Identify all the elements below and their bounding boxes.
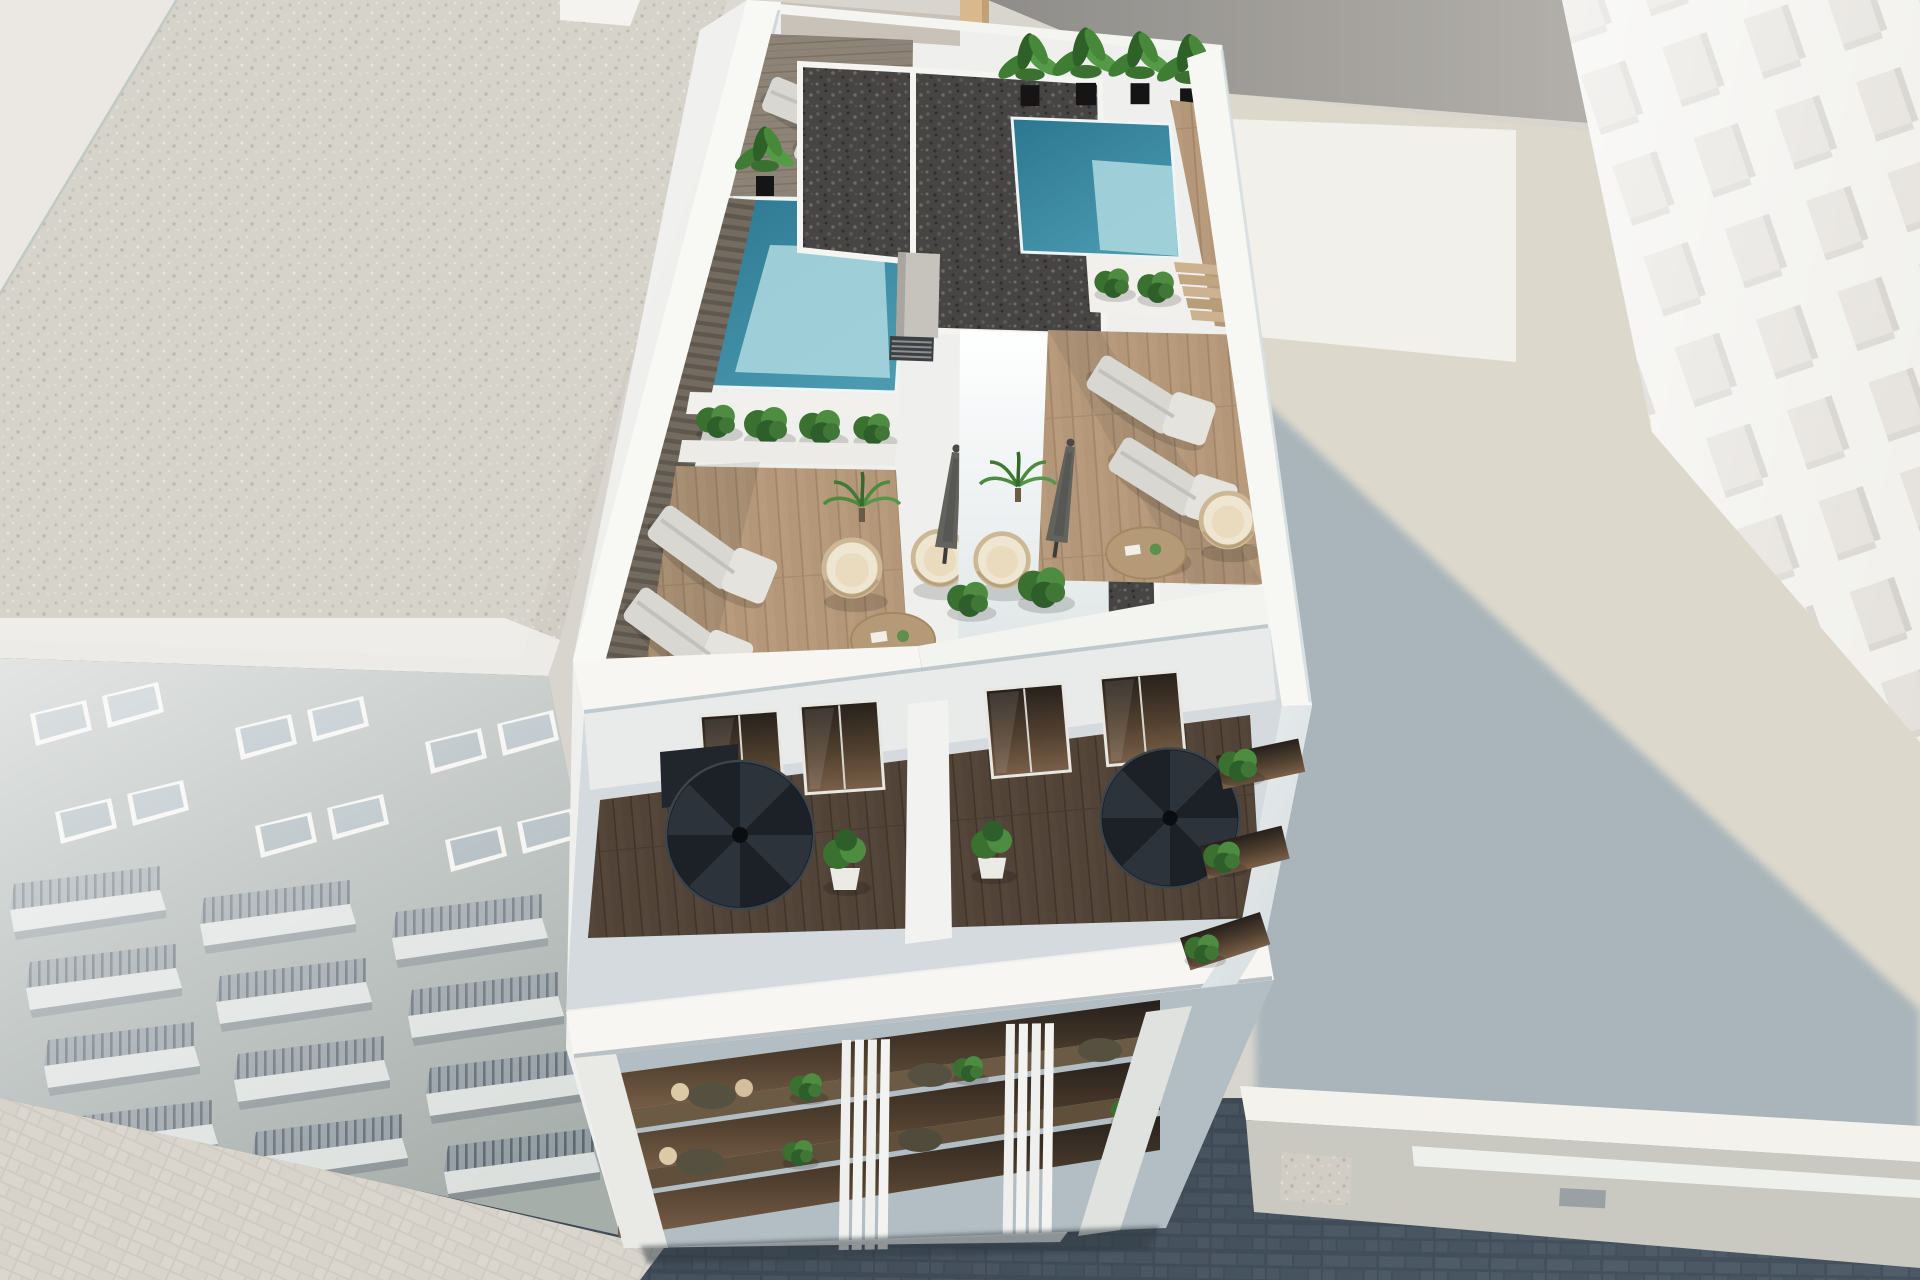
annex-gravel [1280,1152,1352,1206]
balcony-table [898,1128,942,1152]
balcony-chair [671,1083,689,1101]
balcony-chair [659,1147,677,1165]
balcony-table [1078,1038,1122,1062]
planter-wall-low [678,440,897,466]
annex-vent [1559,1188,1606,1208]
architectural-render: Aerial 3D architectural rendering of a m… [0,0,1920,1280]
dark-roof-a [800,64,913,262]
glass-door [800,701,884,794]
balcony-table [688,1083,736,1109]
balcony-table [908,1063,952,1087]
pool-right-shallow [1092,160,1178,256]
glass-door [985,683,1070,777]
louver-vent [889,336,934,362]
screenshot-root: Aerial 3D architectural rendering of a m… [0,0,1920,1280]
divider-wall [905,700,952,944]
balcony-table [676,1149,724,1175]
balcony-chair [735,1079,753,1097]
